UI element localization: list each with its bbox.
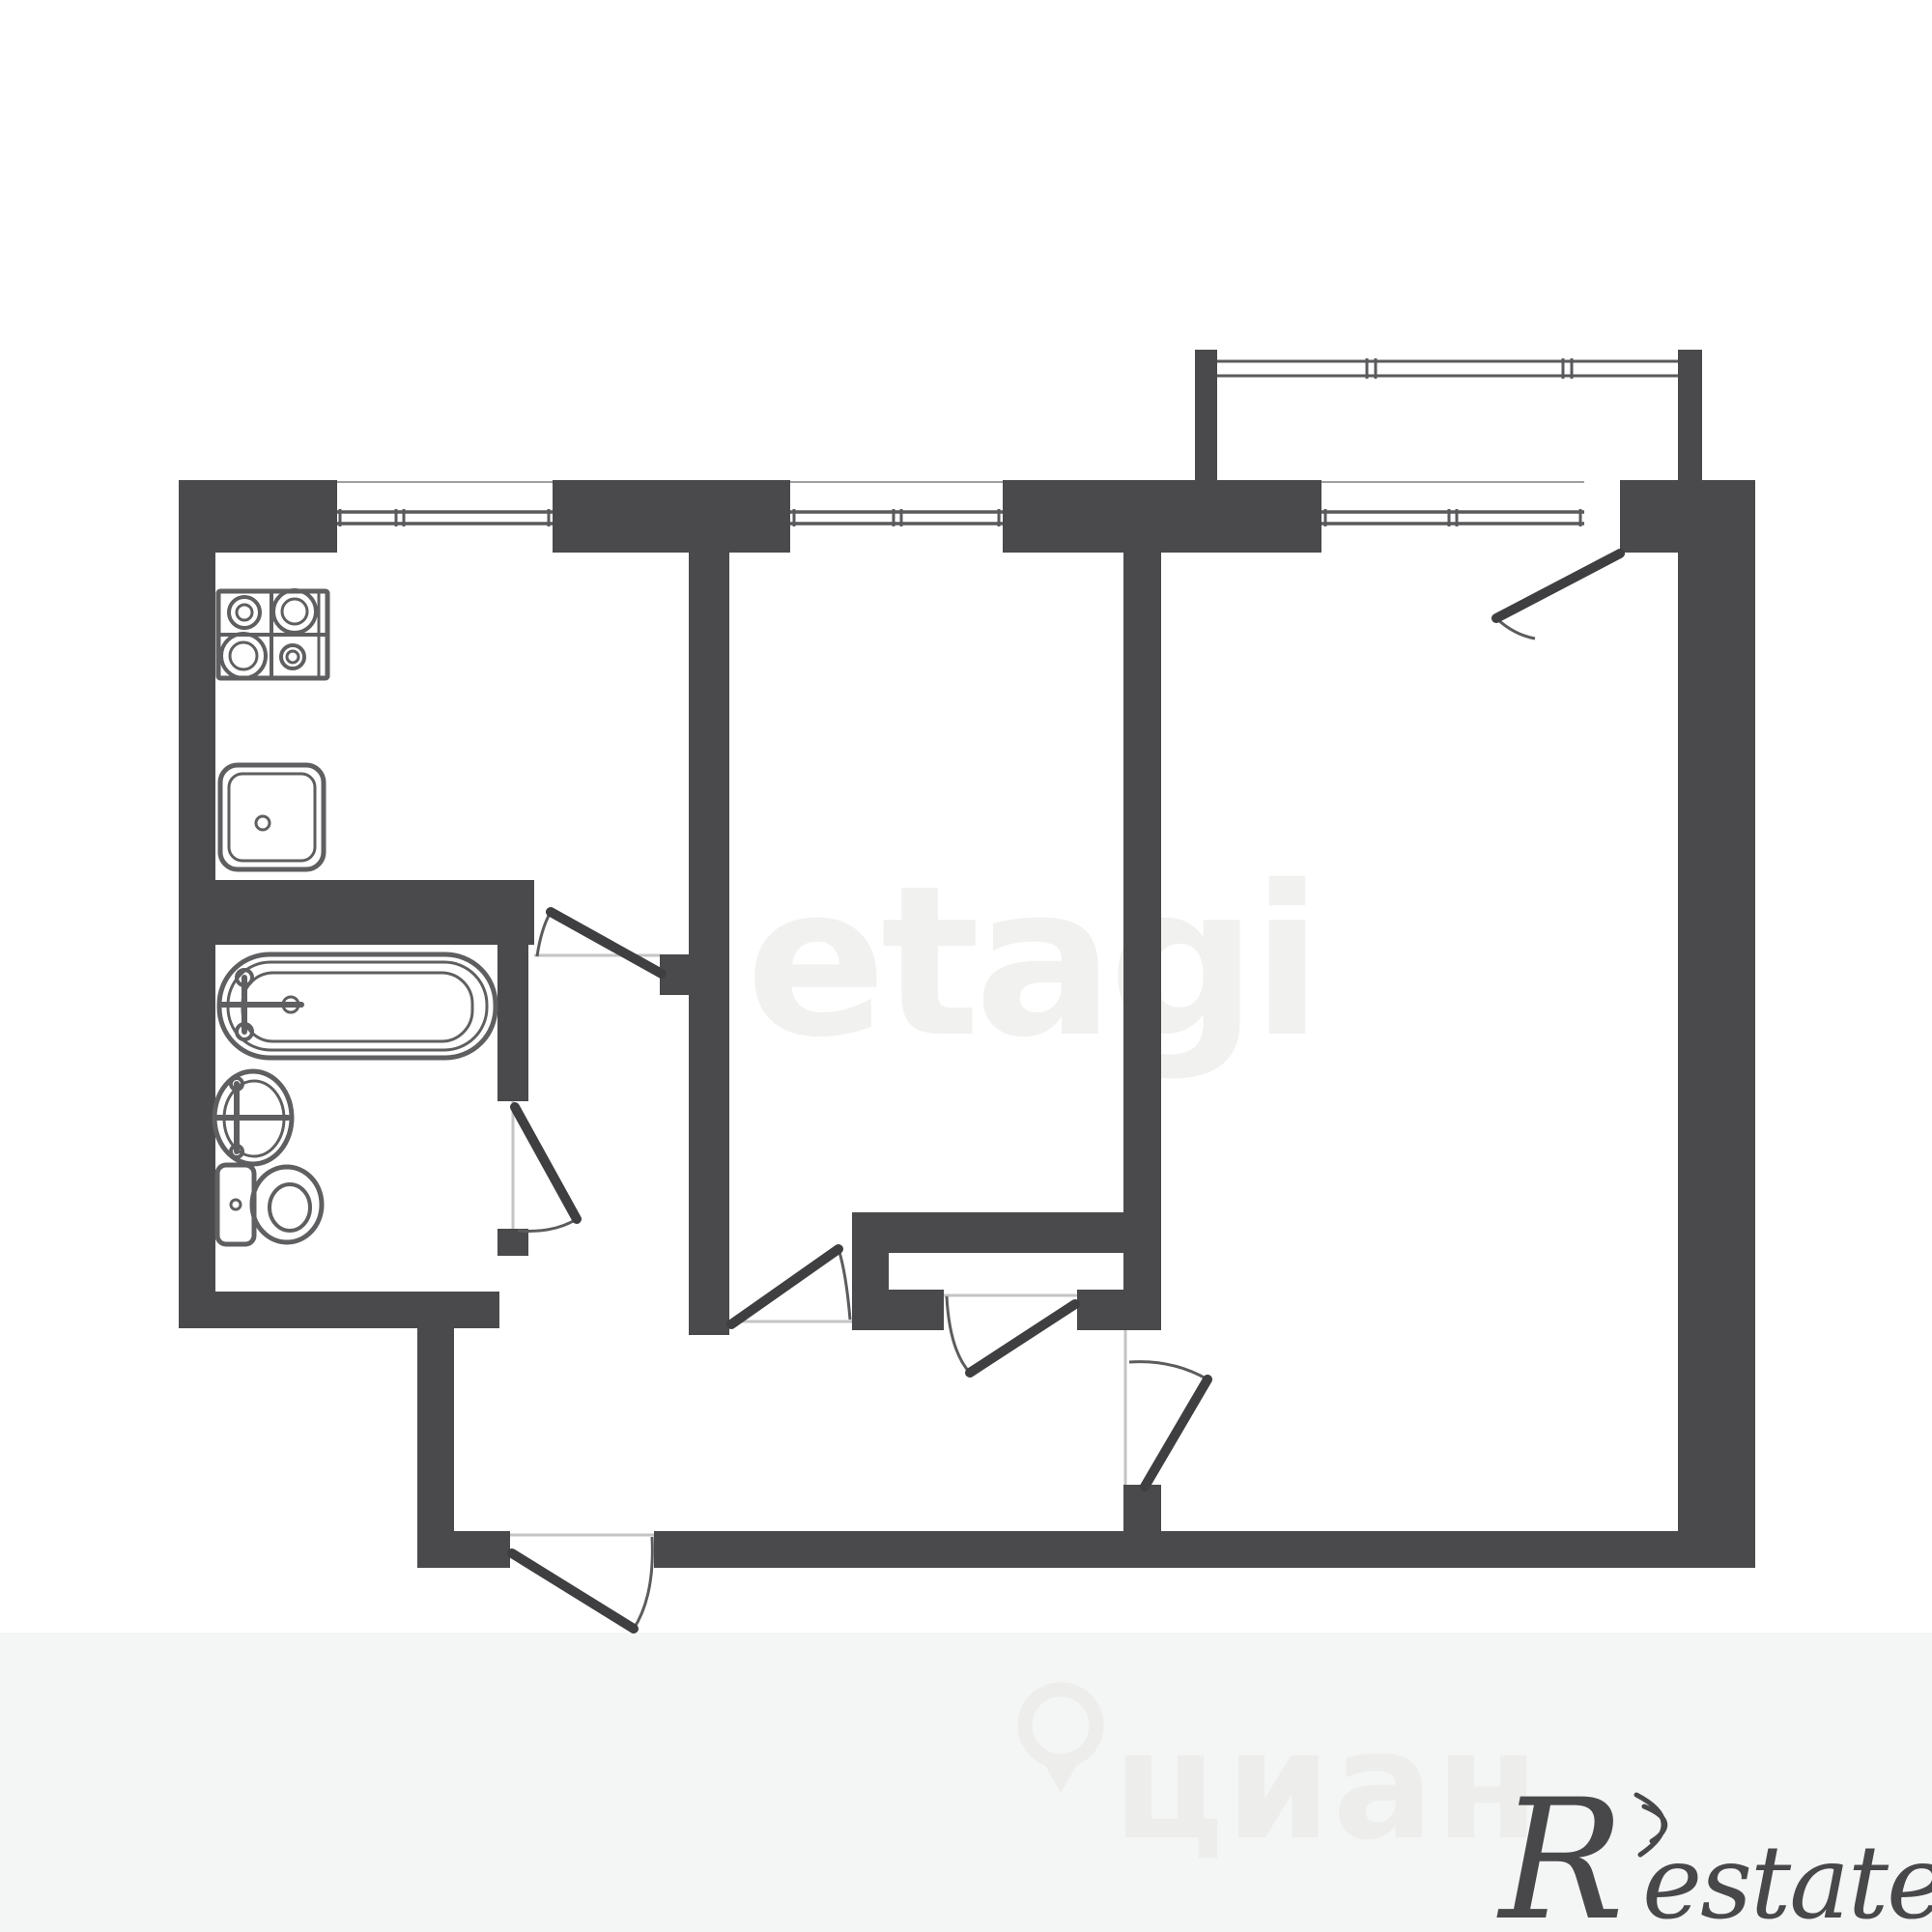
wall-top-mid [553, 480, 790, 553]
wall-bathroom-bottom [179, 1292, 499, 1328]
wall-closet-bottom [889, 1290, 944, 1330]
cian-watermark: циан [1113, 1698, 1541, 1873]
wall-balcony-right [1678, 350, 1702, 480]
wall-balcony-left [1195, 350, 1217, 480]
floor-plan-page: etagiцианRestate [0, 0, 1932, 1932]
restate-watermark-initial: R [1496, 1763, 1625, 1932]
etagi-watermark: etagi [746, 840, 1317, 1083]
wall-bathroom-right-stub [497, 1229, 528, 1256]
wall-closet-bottom-stub [1077, 1290, 1123, 1330]
restate-watermark-rest: estate [1642, 1824, 1932, 1932]
wall-closet-top [852, 1212, 1161, 1253]
floor-plan-svg: etagiцианRestate [0, 0, 1932, 1932]
wall-right-exterior [1678, 480, 1755, 1568]
wall-top-right-mid [1003, 480, 1321, 553]
wall-hall-left [417, 1328, 454, 1568]
wall-room1-door-stub [1123, 1485, 1161, 1531]
wall-left-exterior [179, 480, 215, 1328]
wall-kitchen-room2 [689, 553, 729, 1335]
wall-bathroom-right [497, 945, 528, 1101]
wall-bathroom-top [215, 880, 534, 945]
wall-bottom-main [654, 1531, 1755, 1568]
